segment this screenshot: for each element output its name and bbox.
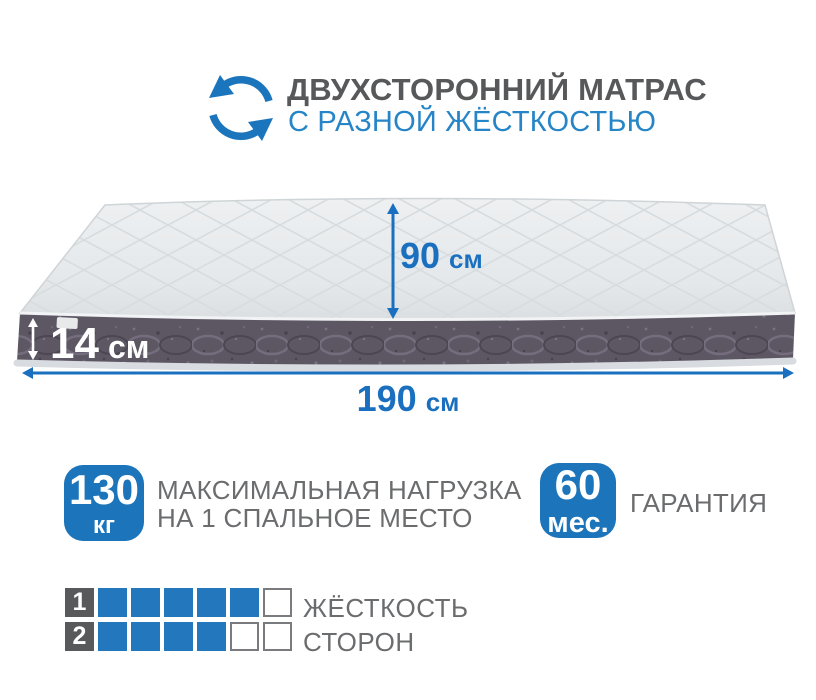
max-load-badge: 130 кг [64,465,144,541]
length-dimension-label: 190 см [0,381,816,417]
scale-square-filled [230,588,259,617]
length-value: 190 [357,381,417,417]
hardness-scale-caption: ЖЁСТКОСТЬ СТОРОН [303,591,469,659]
width-dimension-label: 90 см [400,238,483,274]
max-load-unit: кг [93,514,115,538]
scale-square-filled [197,588,226,617]
hardness-scale-row-2: 2 [65,622,292,651]
hardness-scale-row-1: 1 [65,588,292,617]
max-load-value: 130 [69,469,139,511]
page-subtitle: С РАЗНОЙ ЖЁСТКОСТЬЮ [288,106,656,139]
scale-row-label: 1 [65,588,94,617]
scale-square-filled [98,622,127,651]
scale-square-empty [230,622,259,651]
scale-caption-line1: ЖЁСТКОСТЬ [303,591,469,625]
height-unit: см [108,331,149,363]
scale-square-filled [197,622,226,651]
width-value: 90 [400,238,440,274]
page-title: ДВУХСТОРОННИЙ МАТРАС [287,72,707,108]
height-dimension-label: 14 см [50,322,149,366]
height-value: 14 [50,322,99,366]
length-unit: см [426,389,460,415]
scale-square-filled [164,588,193,617]
scale-caption-line2: СТОРОН [303,625,469,659]
width-unit: см [449,246,483,272]
scale-square-filled [164,622,193,651]
scale-squares [98,588,292,617]
scale-row-label: 2 [65,622,94,651]
max-load-caption-line2: НА 1 СПАЛЬНОЕ МЕСТО [157,503,473,533]
width-dimension-arrow [386,203,400,319]
warranty-value: 60 [555,464,602,506]
scale-square-empty [263,622,292,651]
warranty-badge: 60 мес. [540,463,616,538]
scale-square-filled [131,588,160,617]
warranty-caption: ГАРАНТИЯ [630,489,767,517]
max-load-caption-line1: МАКСИМАЛЬНАЯ НАГРУЗКА [157,475,522,505]
scale-square-filled [131,622,160,651]
warranty-unit: мес. [547,509,608,538]
rotate-arrows-icon [203,70,279,146]
hardness-scale: 1 2 [65,588,292,656]
scale-squares [98,622,292,651]
max-load-caption: МАКСИМАЛЬНАЯ НАГРУЗКА НА 1 СПАЛЬНОЕ МЕСТ… [157,476,522,532]
scale-square-filled [98,588,127,617]
mattress-infographic: ДВУХСТОРОННИЙ МАТРАС С РАЗНОЙ ЖЁСТКОСТЬЮ [0,0,816,700]
scale-square-empty [263,588,292,617]
height-dimension-arrow [26,318,40,360]
